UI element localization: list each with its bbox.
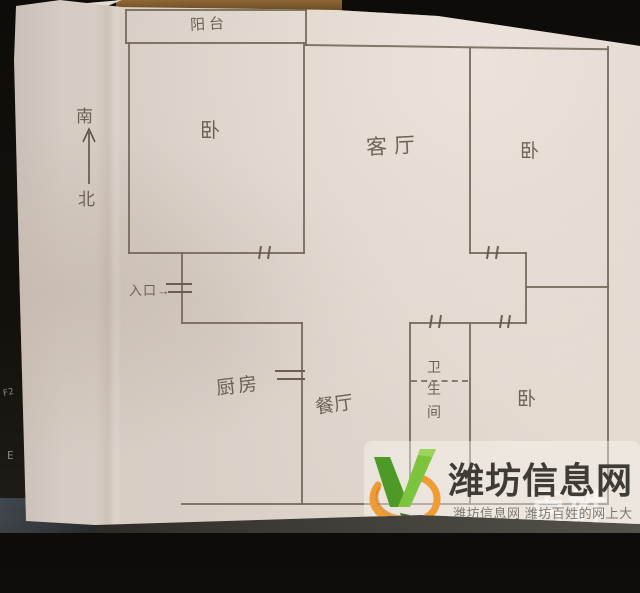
wall-balcony-left bbox=[125, 9, 127, 44]
wall-step-horizontal bbox=[525, 286, 609, 288]
label-entrance: 入口→ bbox=[129, 280, 171, 299]
wall-west bbox=[128, 42, 130, 254]
wall-entry bbox=[181, 252, 183, 324]
floor-plan-paper: 阳台 卧 客厅 卧 厨房 餐厅 卫生间 卧 入口→ 南 北 百姓网 潍坊信息网 … bbox=[0, 0, 640, 533]
wall-bedroom-nw-bottom bbox=[128, 252, 305, 254]
wall-kitchen-right bbox=[301, 322, 303, 505]
wall-balcony-right bbox=[305, 9, 307, 46]
label-dining: 餐厅 bbox=[313, 387, 354, 419]
wall-bedroom-nw-right bbox=[303, 42, 305, 254]
background-mark-2: E bbox=[7, 449, 14, 462]
label-living: 客厅 bbox=[365, 129, 422, 162]
label-bedroom-nw: 卧 bbox=[200, 114, 220, 143]
wall-bedroom-nw-top bbox=[125, 42, 305, 44]
wall-balcony-top bbox=[125, 9, 307, 11]
label-bathroom: 卫生间 bbox=[427, 356, 443, 423]
label-bedroom-ne: 卧 bbox=[520, 136, 539, 163]
door-kitchen-tick bbox=[275, 370, 305, 372]
door-kitchen-tick bbox=[277, 378, 305, 380]
background-mark-1: F2 bbox=[2, 387, 15, 399]
door-entry-tick bbox=[168, 291, 192, 293]
paper-crease bbox=[96, 0, 122, 533]
wall-kitchen-top bbox=[181, 322, 303, 324]
wall-north bbox=[305, 44, 609, 50]
wall-living-bedroom-ne bbox=[469, 47, 471, 254]
wall-step-vertical bbox=[525, 252, 527, 324]
label-balcony: 阳台 bbox=[189, 12, 228, 35]
label-bedroom-se: 卧 bbox=[517, 384, 536, 411]
compass-north-label: 北 bbox=[78, 185, 95, 210]
wall-east bbox=[607, 46, 609, 505]
compass-arrow-icon bbox=[79, 124, 99, 186]
watermark-site-name: 潍坊信息网 bbox=[448, 452, 633, 504]
label-kitchen: 厨房 bbox=[215, 368, 262, 400]
